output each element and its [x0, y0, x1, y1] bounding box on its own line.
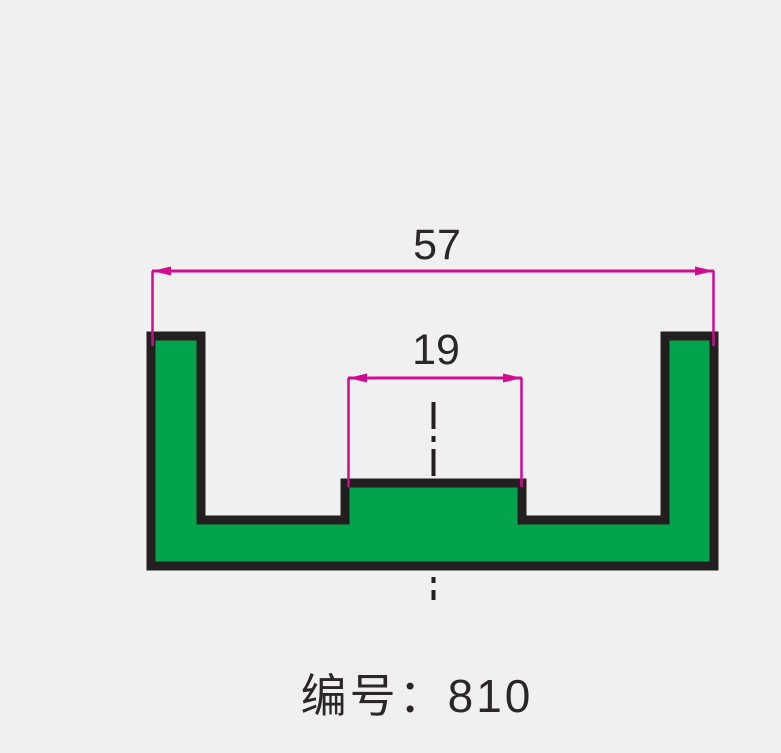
- dimension-value-overall-width: 57: [413, 221, 461, 269]
- part-number-caption: 编号：810: [301, 670, 534, 722]
- dimension-value-boss-width: 19: [412, 326, 460, 374]
- arrowhead-right: [695, 267, 714, 276]
- arrowhead-right: [503, 374, 522, 383]
- drawing-canvas: 57 19 编号：810: [0, 0, 781, 753]
- arrowhead-left: [152, 267, 171, 276]
- arrowhead-left: [348, 374, 367, 383]
- profile-technical-drawing: 57 19 编号：810: [0, 0, 781, 753]
